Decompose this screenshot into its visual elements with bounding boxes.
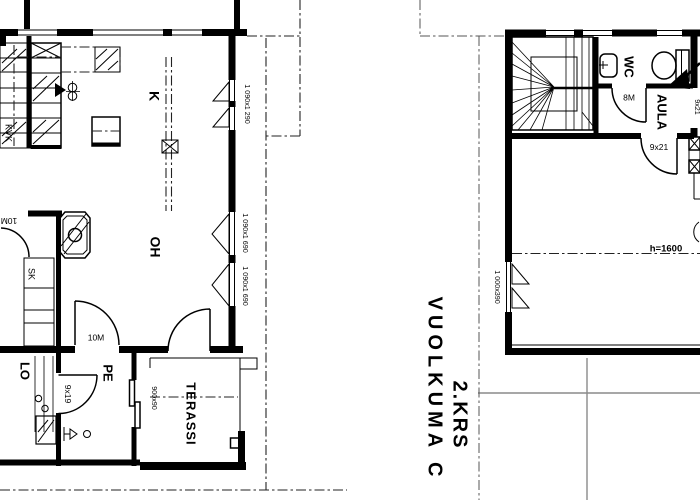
door-label-wc: 8M — [623, 92, 635, 102]
fireplace-inner — [63, 216, 87, 254]
door-label-pe: 9x19 — [63, 385, 73, 404]
door-label-hall: 9x21 — [650, 142, 669, 152]
window-lines — [507, 262, 511, 312]
window-label-2: 1 090x1 690 — [241, 213, 250, 253]
door-label-entry: 9x21 — [693, 99, 700, 115]
door-label-closet: 10M — [1, 216, 18, 226]
cooker-hatch — [96, 49, 118, 70]
blueprint-canvas: KVK K OH SK LO PE TERASSI 10M 10M 9x19 9… — [0, 0, 700, 500]
sink-icon — [55, 81, 80, 101]
valve-icon — [42, 405, 48, 411]
stair-outline — [512, 37, 593, 130]
drawing-title-name: VUOLKUMA C — [424, 297, 446, 482]
sliding-panel — [130, 380, 135, 406]
wall-post-x — [689, 137, 700, 199]
window-sash-icon — [212, 264, 229, 306]
room-label-terrace: TERASSI — [184, 382, 199, 445]
toilet-icon — [652, 52, 676, 79]
floor1-window-symbols — [212, 82, 229, 306]
floor-plan-drawing: KVK K OH SK LO PE TERASSI 10M 10M 9x19 9… — [0, 0, 700, 500]
door-swing-entry — [694, 222, 699, 242]
room-label-aula: AULA — [655, 94, 670, 131]
roof-outline — [478, 358, 700, 500]
room-label-sk: SK — [27, 268, 37, 280]
valve-icon — [35, 395, 41, 401]
shower-icon — [64, 427, 91, 441]
door-label-hall: 10M — [88, 332, 105, 342]
sk-dividers — [24, 288, 54, 323]
floor1-plan: KVK K OH SK LO PE TERASSI 10M 10M 9x19 9… — [0, 0, 257, 470]
shower-valve — [64, 427, 70, 441]
window-label-terrace: 900x90 — [150, 386, 159, 410]
sliding-panel — [135, 402, 140, 428]
door-swing-terrace — [168, 309, 210, 351]
sink-tap-lines — [66, 81, 80, 101]
window-sash-icon — [213, 108, 229, 127]
stairs — [512, 37, 593, 130]
floor2-plan: WC AULA 8M 9x21 9x21 h=1600 1 000x390 2.… — [424, 31, 700, 500]
room-label-living: OH — [147, 237, 163, 258]
floor2-walls — [505, 31, 700, 353]
laundry-fixtures — [35, 356, 56, 444]
window-sash-icon — [512, 264, 529, 284]
window-sash-icon — [213, 82, 229, 101]
window-label-1: 1 000x390 — [493, 270, 502, 304]
shower-head — [70, 429, 77, 439]
stair-landing — [531, 57, 577, 111]
kitchen-island — [92, 117, 120, 146]
fireplace-hatch — [61, 214, 89, 254]
neighbor-wall-stubs — [3, 0, 237, 46]
window-label-1: 1 090x1 290 — [243, 84, 252, 124]
drawing-title-floor: 2.KRS — [449, 381, 471, 450]
window-sash-icon — [212, 214, 229, 254]
top-wall-windows — [18, 30, 202, 35]
terrace-step — [240, 358, 257, 369]
fireplace-icon — [60, 212, 90, 258]
floor-drain-icon — [84, 431, 91, 438]
room-label-kitchen: K — [146, 91, 162, 101]
height-note: h=1600 — [650, 244, 683, 255]
entry-arrow-head — [667, 69, 690, 89]
washer-hatch — [38, 420, 54, 442]
room-label-pe: PE — [101, 364, 116, 382]
flue-centerlines — [166, 57, 172, 211]
flue-post-x — [162, 140, 178, 153]
straight-treads — [566, 37, 593, 130]
floor2-window — [507, 262, 530, 312]
winder-treads — [512, 42, 554, 130]
window-label-3: 1 090x1 690 — [241, 266, 250, 306]
window-sash-icon — [512, 288, 529, 308]
post-wall — [689, 137, 700, 199]
door-swing-closet — [1, 228, 29, 257]
corner-cabinet-x — [31, 43, 61, 58]
wc-fixtures — [599, 50, 689, 81]
room-label-kvk: KVK — [4, 124, 14, 142]
room-label-lo: LO — [18, 362, 33, 380]
room-label-wc: WC — [622, 56, 637, 78]
lo-cabinet-fronts — [35, 356, 53, 432]
